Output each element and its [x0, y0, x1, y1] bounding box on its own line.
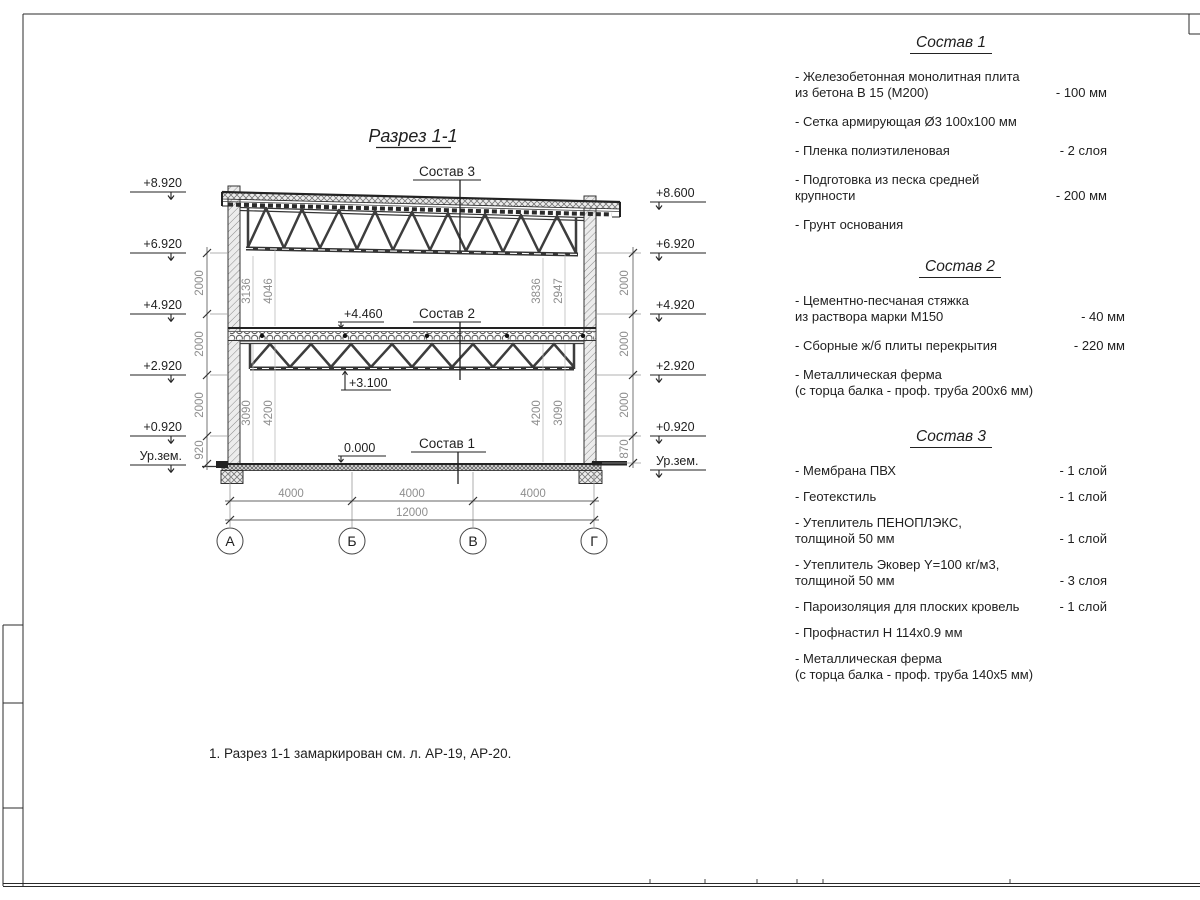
composition-item: - Сборные ж/б плиты перекрытия - 220 мм [795, 338, 1125, 354]
composition-title-text: Состав 2 [919, 258, 1001, 278]
composition-item: - Геотекстиль - 1 слой [795, 489, 1107, 505]
dim-chain: 2000 [194, 392, 206, 418]
item-label: - Цементно-песчаная стяжка из раствора м… [795, 293, 1073, 325]
composition-item: - Подготовка из песка средней крупности … [795, 172, 1107, 204]
dim-chain: 870 [619, 439, 631, 458]
elevation-marks-left: +8.920 +6.920 +4.920 +2.920 +0.920 Ур.зе… [130, 176, 186, 473]
dim-inner: 3836 [531, 278, 543, 304]
composition-item: - Грунт основания [795, 217, 1107, 233]
item-label: - Пленка полиэтиленовая [795, 143, 1052, 159]
item-label: - Утеплитель ПЕНОПЛЭКС, толщиной 50 мм [795, 515, 1051, 547]
callout-label: Состав 3 [419, 164, 475, 179]
elevation-label: +6.920 [143, 237, 182, 251]
callout-label: Состав 1 [419, 436, 475, 451]
dim-inner: 3136 [241, 278, 253, 304]
item-value: - 1 слой [1059, 599, 1107, 615]
dim-chain: 2000 [619, 331, 631, 357]
elevation-label: Ур.зем. [656, 454, 698, 468]
item-value: - 2 слоя [1060, 143, 1107, 159]
axis-label: А [225, 533, 235, 549]
item-label: - Грунт основания [795, 217, 1099, 233]
dim-inner: 2947 [553, 278, 565, 304]
composition-item: - Пароизоляция для плоских кровель - 1 с… [795, 599, 1107, 615]
item-label: - Сборные ж/б плиты перекрытия [795, 338, 1066, 354]
composition-item: - Мембрана ПВХ - 1 слой [795, 463, 1107, 479]
composition-item: - Железобетонная монолитная плита из бет… [795, 69, 1107, 101]
item-label: - Сетка армирующая Ø3 100х100 мм [795, 114, 1099, 130]
composition-item: - Сетка армирующая Ø3 100х100 мм [795, 114, 1107, 130]
axis-bubbles: А Б В Г [217, 528, 607, 554]
dim-chain: 2000 [194, 270, 206, 296]
span-dim: 4000 [399, 488, 425, 500]
total-dim: 12000 [396, 507, 428, 519]
elevation-label: +4.460 [344, 307, 383, 321]
composition-title-text: Состав 1 [910, 34, 992, 54]
ground-floor [202, 461, 627, 484]
item-value: - 3 слоя [1060, 573, 1107, 589]
dim-chain: 2000 [619, 270, 631, 296]
elevation-label: +4.920 [656, 298, 695, 312]
callout-label: Состав 2 [419, 306, 475, 321]
item-label: - Пароизоляция для плоских кровель [795, 599, 1051, 615]
composition-item: - Утеплитель ПЕНОПЛЭКС, толщиной 50 мм -… [795, 515, 1107, 547]
item-label: - Профнастил Н 114х0.9 мм [795, 625, 1099, 641]
item-label: - Металлическая ферма (с торца балка - п… [795, 651, 1099, 683]
elevation-label: 0.000 [344, 441, 375, 455]
span-dim: 4000 [278, 488, 304, 500]
item-value: - 1 слой [1059, 489, 1107, 505]
composition-title: Состав 3 [795, 428, 1107, 446]
composition-group-2: Состав 2 - Цементно-песчаная стяжка из р… [795, 258, 1125, 412]
elevation-label: Ур.зем. [140, 449, 182, 463]
drawing-sheet: { "section": { "title": "Разрез 1-1", "c… [0, 0, 1200, 900]
middle-floor-slab [228, 328, 596, 341]
elevation-label: +6.920 [656, 237, 695, 251]
item-label: - Мембрана ПВХ [795, 463, 1051, 479]
section-title: Разрез 1-1 [368, 126, 457, 148]
elevation-label: +8.600 [656, 186, 695, 200]
dim-inner: 3090 [241, 400, 253, 426]
composition-item: - Цементно-песчаная стяжка из раствора м… [795, 293, 1125, 325]
dim-inner: 4046 [263, 278, 275, 304]
sheet-note: 1. Разрез 1-1 замаркирован см. л. АР-19,… [209, 746, 511, 761]
left-dim-chain: 2000 2000 2000 920 [194, 247, 228, 470]
item-value: - 220 мм [1074, 338, 1125, 354]
dim-inner: 4200 [263, 400, 275, 426]
item-value: - 40 мм [1081, 309, 1125, 325]
elevation-label: +2.920 [143, 359, 182, 373]
axis-label: Б [347, 533, 356, 549]
elevation-label: +4.920 [143, 298, 182, 312]
elevation-label: +0.920 [143, 420, 182, 434]
item-value: - 200 мм [1056, 188, 1107, 204]
interior-dim-texts: 3136 4046 3836 2947 3090 4200 4200 3090 [241, 278, 565, 426]
elevation-label: +8.920 [143, 176, 182, 190]
section-title-text: Разрез 1-1 [368, 126, 457, 146]
item-label: - Подготовка из песка средней крупности [795, 172, 1048, 204]
composition-item: - Профнастил Н 114х0.9 мм [795, 625, 1107, 641]
composition-item: - Металлическая ферма (с торца балка - п… [795, 367, 1125, 399]
composition-group-1: Состав 1 - Железобетонная монолитная пли… [795, 34, 1107, 246]
item-value: - 1 слой [1059, 531, 1107, 547]
elevation-marks-right: +8.600 +6.920 +4.920 +2.920 +0.920 Ур.зе… [650, 186, 706, 478]
dim-chain: 920 [194, 440, 206, 459]
item-label: - Геотекстиль [795, 489, 1051, 505]
roof-assembly [222, 192, 620, 221]
item-label: - Утеплитель Эковер Y=100 кг/м3, толщино… [795, 557, 1052, 589]
composition-item: - Металлическая ферма (с торца балка - п… [795, 651, 1107, 683]
bottom-dimensions: 4000 4000 4000 12000 [225, 472, 599, 527]
item-value: - 1 слой [1059, 463, 1107, 479]
composition-item: - Утеплитель Эковер Y=100 кг/м3, толщино… [795, 557, 1107, 589]
item-value: - 100 мм [1056, 85, 1107, 101]
elevation-label: +0.920 [656, 420, 695, 434]
composition-title: Состав 1 [795, 34, 1107, 52]
dim-inner: 3090 [553, 400, 565, 426]
item-label: - Железобетонная монолитная плита из бет… [795, 69, 1048, 101]
axis-label: В [468, 533, 477, 549]
composition-title-text: Состав 3 [910, 428, 992, 448]
elevation-label: +3.100 [349, 376, 388, 390]
axis-label: Г [590, 533, 598, 549]
elevation-label: +2.920 [656, 359, 695, 373]
inline-elevations: +4.460 +3.100 0.000 [338, 307, 391, 462]
title-block-ticks [650, 879, 1010, 883]
right-dim-chain: 2000 2000 2000 870 [596, 247, 641, 468]
dim-inner: 4200 [531, 400, 543, 426]
composition-title: Состав 2 [795, 258, 1125, 276]
composition-group-3: Состав 3 - Мембрана ПВХ - 1 слой - Геоте… [795, 428, 1107, 693]
item-label: - Металлическая ферма (с торца балка - п… [795, 367, 1117, 399]
span-dim: 4000 [520, 488, 546, 500]
composition-item: - Пленка полиэтиленовая - 2 слоя [795, 143, 1107, 159]
dim-chain: 2000 [619, 392, 631, 418]
dim-chain: 2000 [194, 331, 206, 357]
middle-truss [240, 341, 584, 369]
